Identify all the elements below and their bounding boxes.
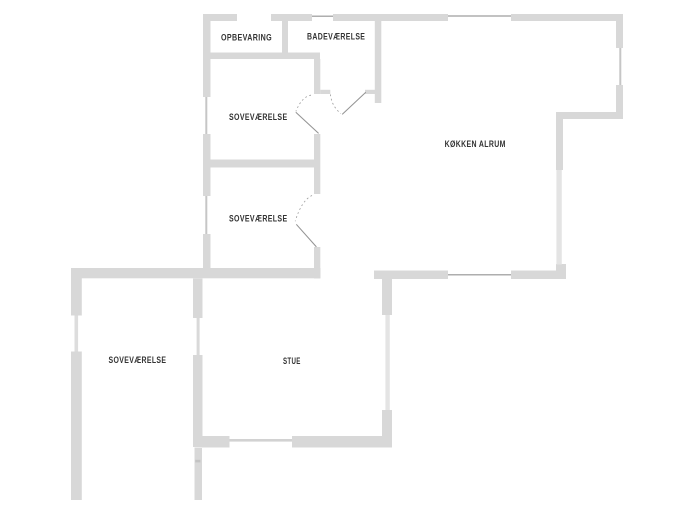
svg-text:SOVEVÆRELSE: SOVEVÆRELSE bbox=[229, 112, 288, 123]
svg-text:STUE: STUE bbox=[283, 356, 301, 367]
svg-text:BADEVÆRELSE: BADEVÆRELSE bbox=[307, 32, 365, 43]
svg-text:SOVEVÆRELSE: SOVEVÆRELSE bbox=[229, 214, 288, 225]
svg-text:KØKKEN ALRUM: KØKKEN ALRUM bbox=[445, 139, 506, 150]
svg-text:SOVEVÆRELSE: SOVEVÆRELSE bbox=[109, 355, 167, 366]
svg-text:OPBEVARING: OPBEVARING bbox=[221, 32, 272, 43]
